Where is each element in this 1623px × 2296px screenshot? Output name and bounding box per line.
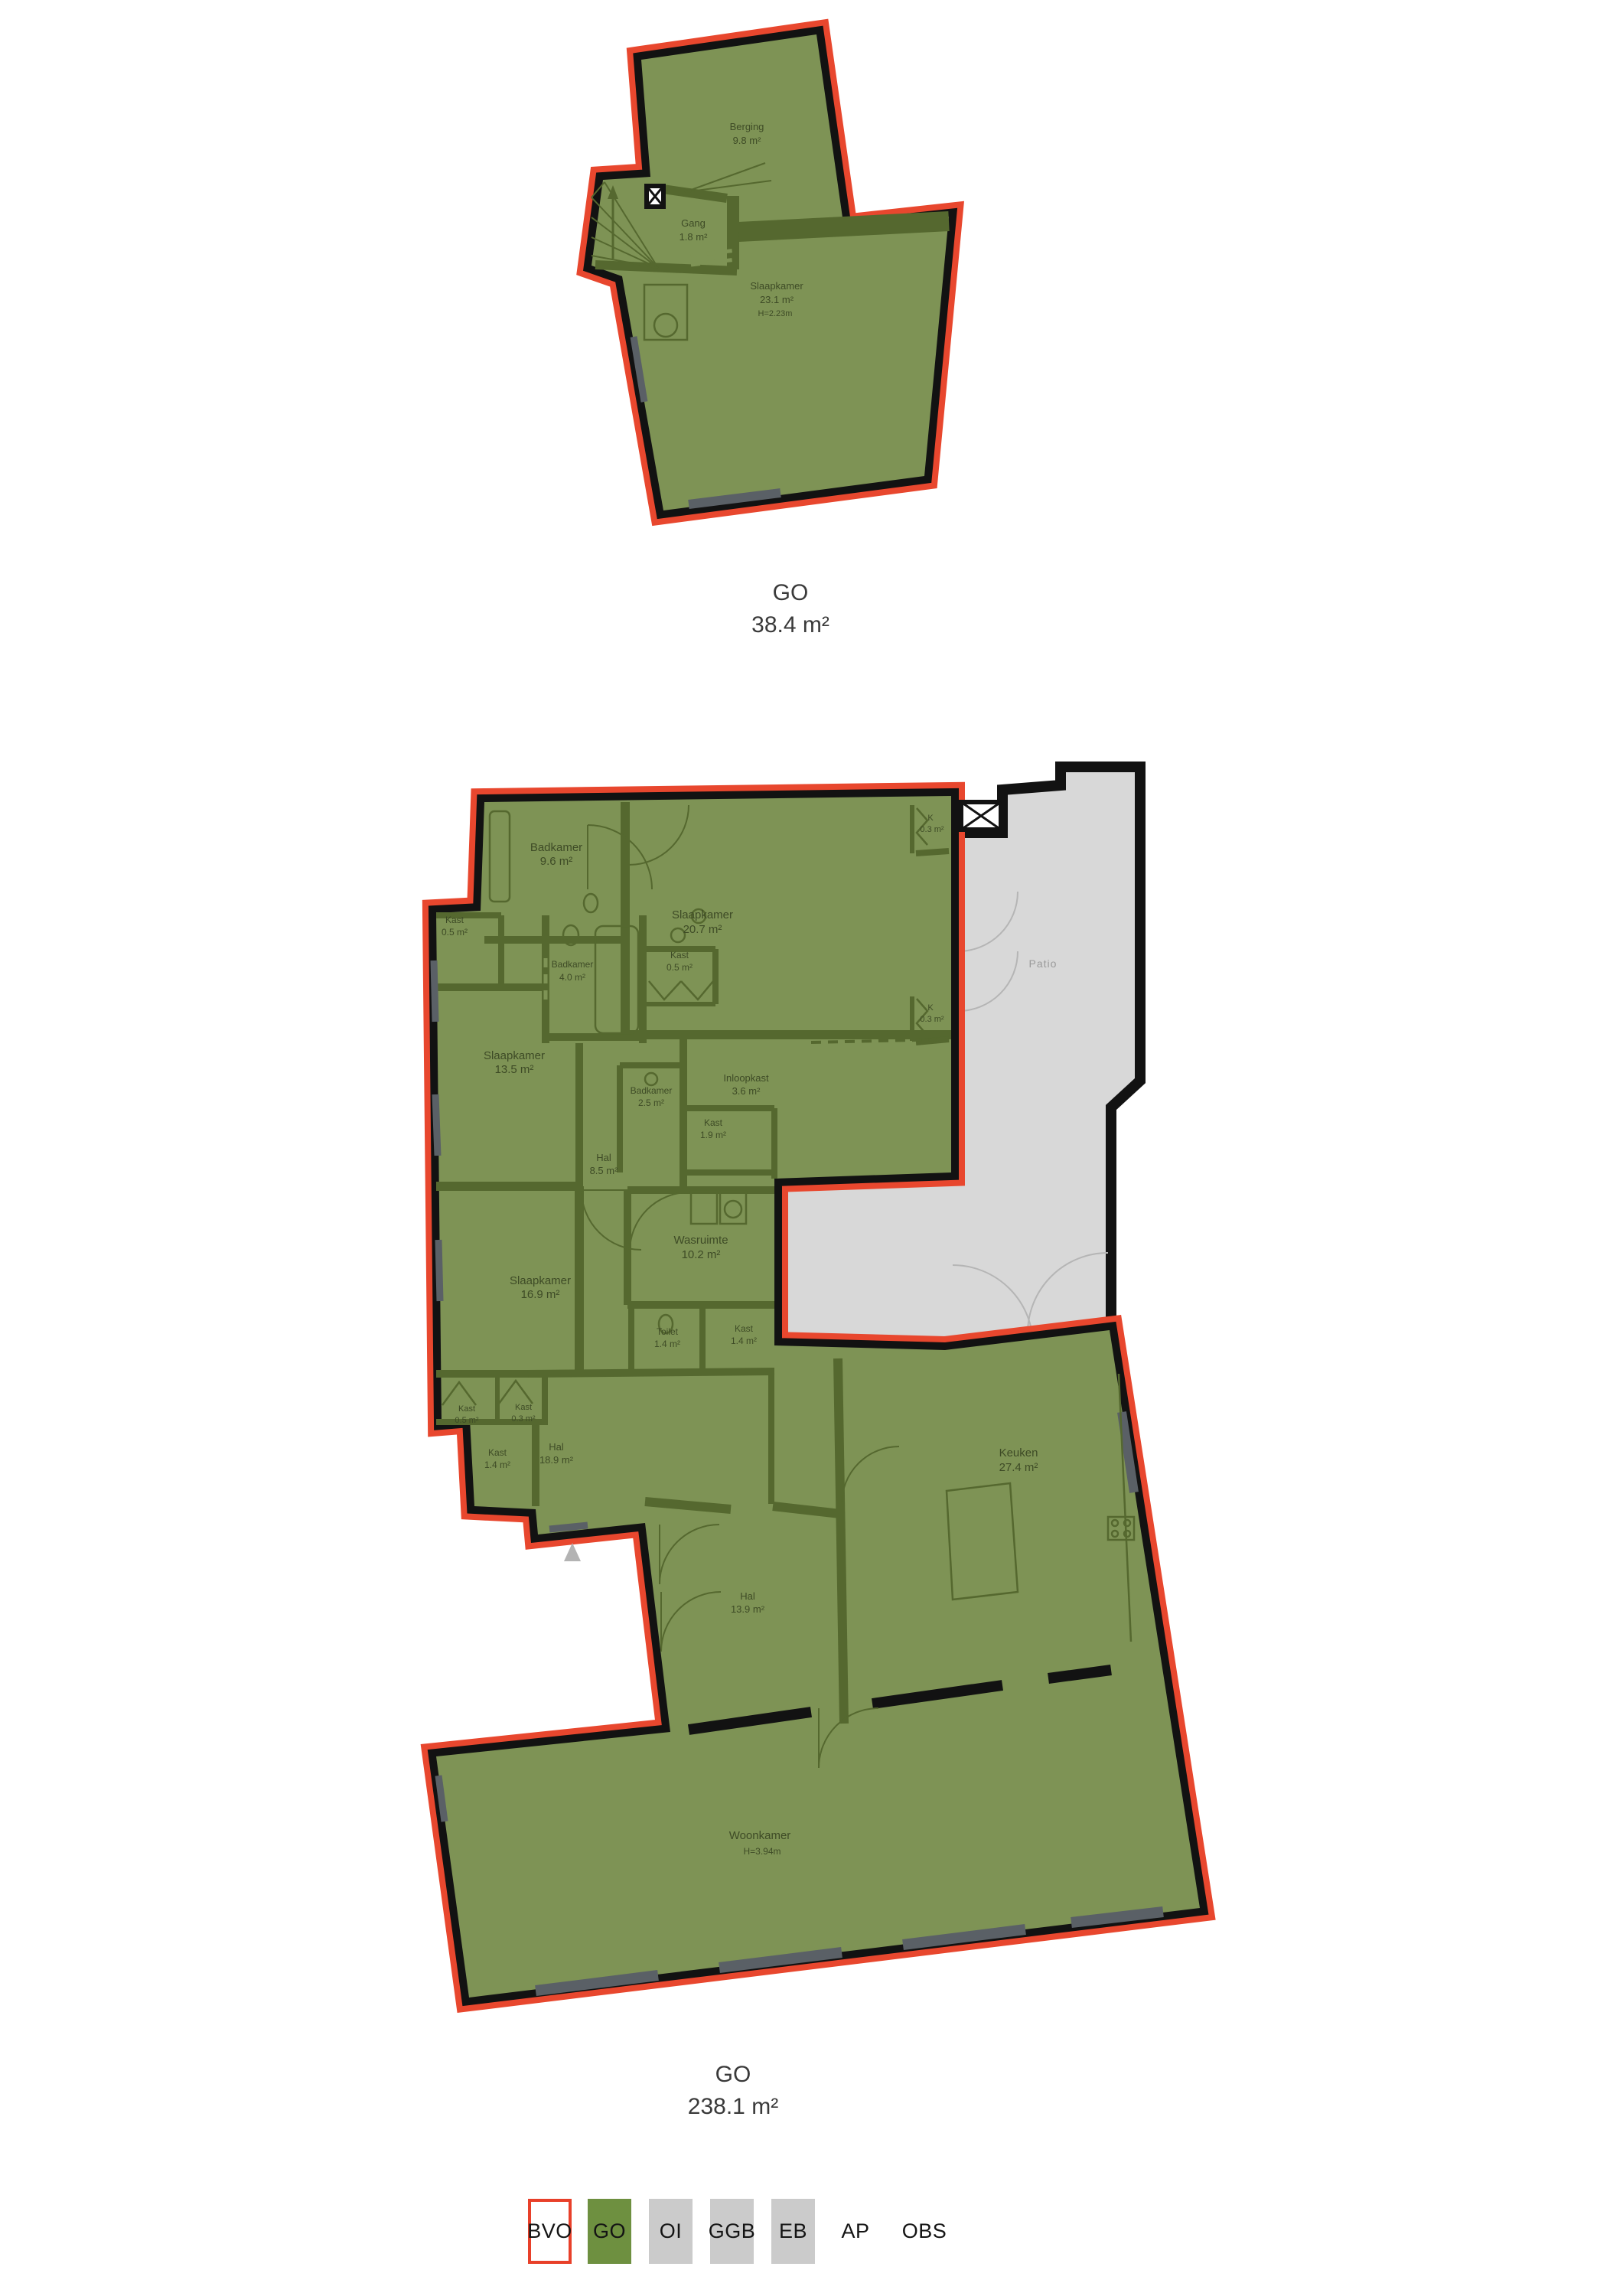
room-area-hal-139: 13.9 m² [731,1603,765,1615]
legend-label-obs: OBS [902,2219,947,2243]
room-area-kast-l: 0.5 m² [442,927,468,938]
room-label-gang: Gang [681,217,706,229]
room-label-keuken: Keuken [999,1446,1038,1459]
room-area-gang: 1.8 m² [680,231,709,243]
room-area-keuken: 27.4 m² [999,1461,1038,1474]
room-label-kast-r: Kast [735,1323,754,1334]
room-area-k-2: 0.3 m² [920,1015,944,1024]
room-label-slaapkamer-1: Slaapkamer [750,280,803,292]
room-area-kast-r: 1.4 m² [731,1336,757,1346]
room-area-kast-m: 0.5 m² [666,962,693,973]
room-area-wasruimte: 10.2 m² [682,1248,721,1261]
room-area-berging: 9.8 m² [733,135,762,146]
room-label-woonkamer: Woonkamer [729,1829,791,1842]
room-label-badkamer-40: Badkamer [552,959,594,970]
room-height-slaapkamer-1: H=2.23m [758,309,793,318]
caption-go-38-area: 38.4 m² [751,612,829,638]
caption-go-38-label: GO [773,580,809,605]
legend: BVO GO OI GGB EB AP OBS [0,2199,1623,2264]
room-area-slaapkamer-1: 23.1 m² [760,294,794,305]
legend-item-oi: OI [649,2199,693,2264]
room-label-kast-l: Kast [445,915,464,925]
room-label-kast-b2: Kast [515,1403,532,1412]
floor-plan-page: Berging 9.8 m² Gang 1.8 m² Slaapkamer 23… [0,0,1623,2296]
room-area-slaapkamer-135: 13.5 m² [495,1063,534,1076]
room-label-kast-m: Kast [670,950,689,960]
legend-label-eb: EB [779,2219,807,2243]
room-area-kast-b1: 0.5 m² [455,1416,479,1425]
room-label-kast-19: Kast [704,1117,723,1128]
room-label-hal-85: Hal [596,1152,611,1163]
floor-plan-canvas: Berging 9.8 m² Gang 1.8 m² Slaapkamer 23… [0,0,1623,2296]
room-area-hal-85: 8.5 m² [590,1165,619,1176]
room-label-berging: Berging [730,121,764,132]
legend-label-ap: AP [841,2219,869,2243]
room-label-slaapkamer-169: Slaapkamer [510,1274,571,1287]
patio-label: Patio [1029,957,1058,970]
room-area-hal-189: 18.9 m² [539,1454,574,1466]
room-area-k-1: 0.3 m² [920,825,944,834]
legend-item-obs: OBS [894,2199,955,2264]
plan1-shaft-icon [647,186,663,207]
room-label-kast-b1: Kast [458,1404,475,1414]
legend-label-go: GO [593,2219,626,2243]
caption-go-238-label: GO [715,2062,751,2087]
room-label-badkamer-25: Badkamer [631,1085,673,1096]
room-area-badkamer-96: 9.6 m² [540,855,573,868]
caption-go-238-area: 238.1 m² [688,2094,778,2119]
legend-item-bvo: BVO [528,2199,572,2264]
legend-label-ggb: GGB [709,2219,756,2243]
room-area-slaapkamer-169: 16.9 m² [521,1288,560,1301]
room-area-kast-19: 1.9 m² [700,1130,726,1140]
room-label-toilet: Toilet [657,1326,679,1337]
room-label-kast-b3: Kast [488,1447,507,1458]
room-label-hal-139: Hal [740,1590,755,1602]
room-label-hal-189: Hal [549,1441,564,1453]
plan2-shaft-icon [961,802,1001,830]
legend-item-go: GO [588,2199,631,2264]
floor-plan-go-38: Berging 9.8 m² Gang 1.8 m² Slaapkamer 23… [592,34,949,638]
room-label-slaapkamer-135: Slaapkamer [484,1049,545,1062]
room-area-badkamer-25: 2.5 m² [638,1097,664,1108]
plan1-caption: GO 38.4 m² [751,580,829,638]
room-area-toilet: 1.4 m² [654,1339,680,1349]
legend-label-oi: OI [660,2219,683,2243]
room-label-k-1: K [927,814,934,823]
plan2-caption: GO 238.1 m² [688,2062,778,2119]
room-label-slaapkamer-207: Slaapkamer [672,908,733,921]
legend-item-ap: AP [825,2199,886,2264]
room-area-kast-b3: 1.4 m² [484,1459,510,1470]
legend-item-ggb: GGB [710,2199,754,2264]
legend-item-eb: EB [771,2199,815,2264]
north-arrow-marker [564,1543,581,1561]
room-area-badkamer-40: 4.0 m² [559,972,585,983]
room-label-badkamer-96: Badkamer [530,841,582,854]
room-area-slaapkamer-207: 20.7 m² [683,923,722,936]
room-label-inloopkast: Inloopkast [723,1072,769,1084]
room-label-wasruimte: Wasruimte [673,1234,728,1247]
legend-label-bvo: BVO [527,2219,572,2243]
room-label-k-2: K [927,1003,934,1013]
room-height-woonkamer: H=3.94m [743,1846,781,1857]
room-area-kast-b2: 0.3 m² [511,1414,536,1424]
room-area-inloopkast: 3.6 m² [732,1085,761,1097]
